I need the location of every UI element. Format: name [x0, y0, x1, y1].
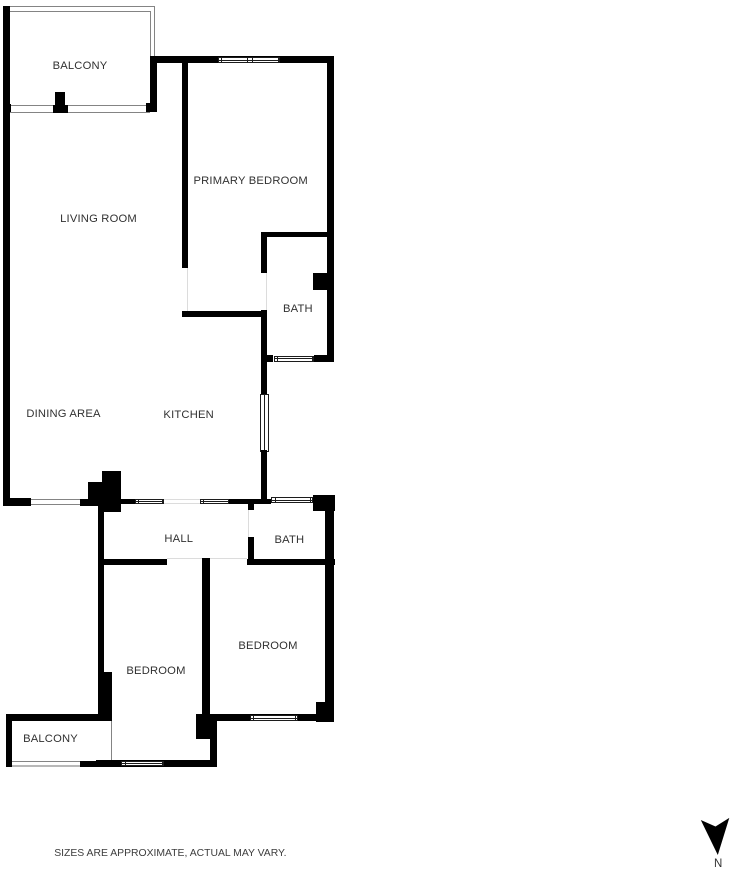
svg-text:N: N: [714, 858, 722, 870]
